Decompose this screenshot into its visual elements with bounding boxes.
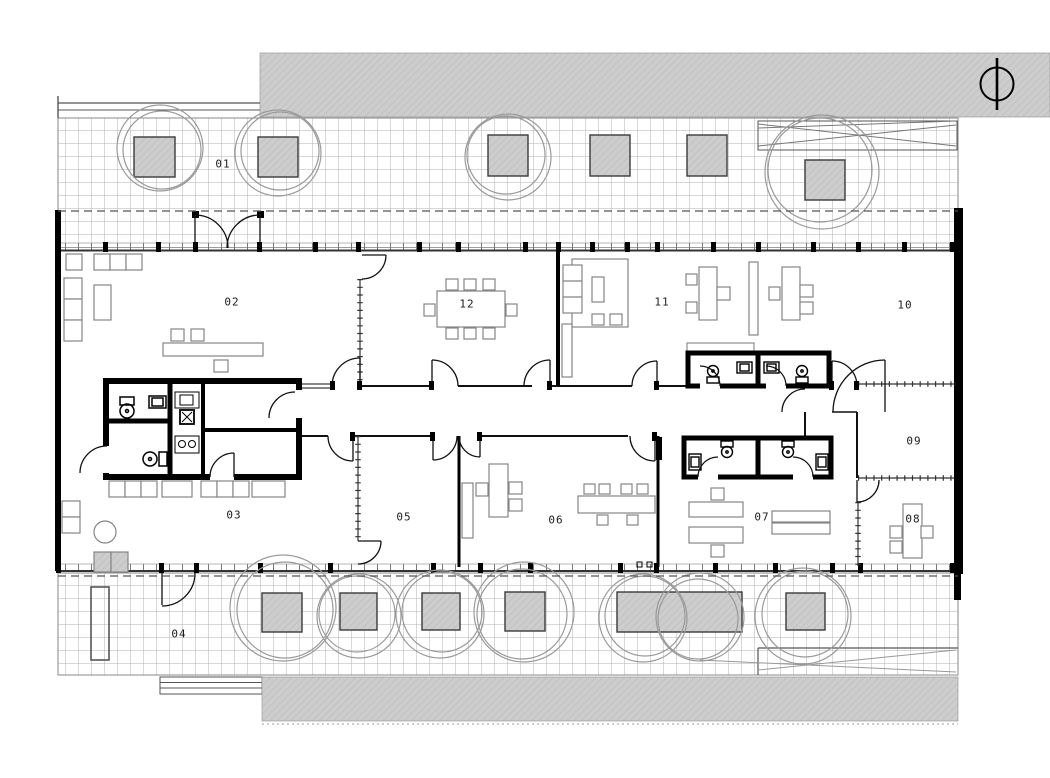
room-label-09: 09 (906, 435, 921, 448)
planter-icon (258, 137, 298, 177)
room-label-01: 01 (215, 158, 230, 171)
planter-icon (262, 593, 302, 632)
room-label-04: 04 (171, 628, 186, 641)
plan-linework (0, 0, 1050, 778)
room-label-08: 08 (905, 513, 920, 526)
floor-plan-drawing: 01 02 03 04 05 06 07 08 09 10 11 12 (0, 0, 1050, 778)
room-label-06: 06 (548, 514, 563, 527)
planter-icon (805, 160, 845, 200)
room-label-12: 12 (459, 298, 474, 311)
planter-icon (340, 593, 377, 630)
paving-band-north (260, 53, 1050, 117)
planter-icon (422, 593, 460, 630)
planter-icon (590, 135, 630, 176)
planter-icon (687, 135, 727, 176)
paving-band-south (262, 677, 958, 724)
planter-icon (488, 135, 528, 176)
planter-icon (617, 592, 742, 632)
planter-icon (505, 592, 545, 631)
planter-icon (786, 593, 825, 630)
exterior-steps (160, 677, 262, 694)
room-label-10: 10 (897, 299, 912, 312)
planter-icon (134, 137, 175, 177)
room-label-11: 11 (654, 296, 669, 309)
room-label-03: 03 (226, 509, 241, 522)
sanitary-core-lower (656, 437, 831, 481)
room-label-05: 05 (396, 511, 411, 524)
room-label-02: 02 (224, 296, 239, 309)
sanitary-core-left (100, 381, 304, 481)
room-label-07: 07 (754, 511, 769, 524)
